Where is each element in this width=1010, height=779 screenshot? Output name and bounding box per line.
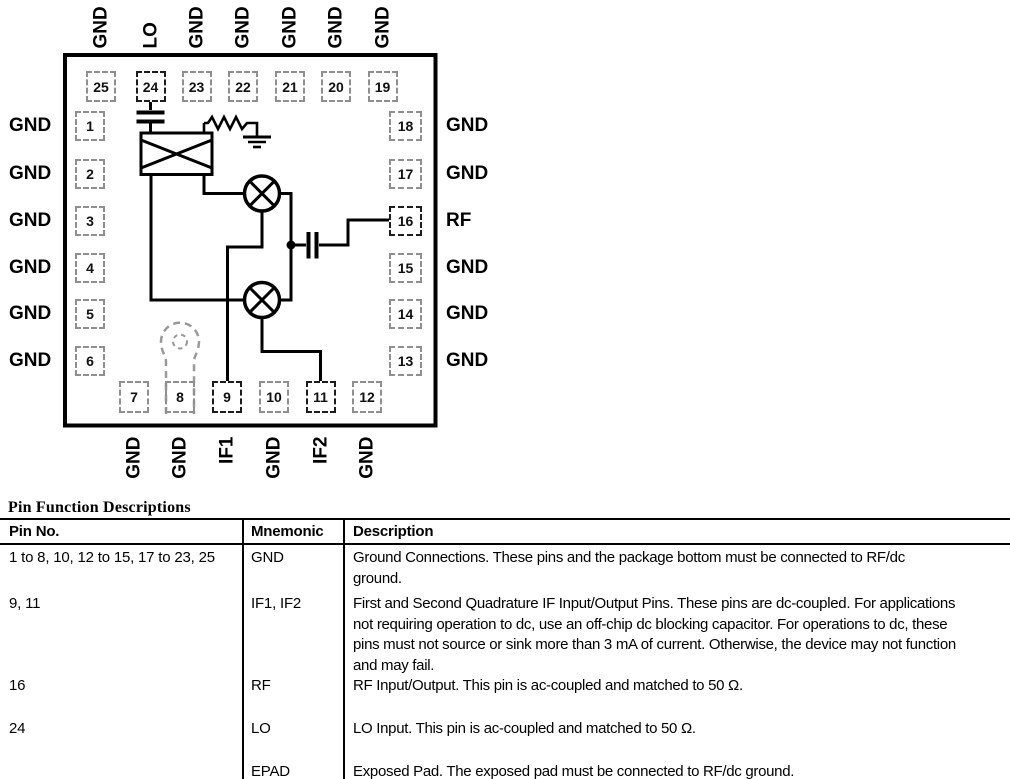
table-row: 1 to 8, 10, 12 to 15, 17 to 23, 25GNDGro…: [0, 545, 1010, 591]
ground-icon: [243, 137, 271, 147]
package-outline: [65, 55, 436, 426]
cell-mnemonic: RF: [242, 673, 343, 716]
capacitor-icon: [137, 102, 165, 133]
pin-12: 12: [352, 381, 382, 413]
pin-label-gnd: GND: [9, 257, 51, 279]
table-header-description: Description: [343, 520, 1010, 543]
pin-label-gnd: GND: [9, 303, 51, 325]
pin-label-gnd: GND: [125, 436, 144, 488]
pin-20: 20: [321, 71, 351, 102]
pin-label-lo: LO: [141, 0, 160, 48]
cell-pin-no: 24: [0, 716, 242, 759]
cell-pin-no: 1 to 8, 10, 12 to 15, 17 to 23, 25: [0, 545, 242, 591]
pin-3: 3: [75, 206, 105, 236]
pin-21: 21: [275, 71, 305, 102]
pin-label-gnd: GND: [358, 436, 377, 488]
pin-label-gnd: GND: [281, 0, 300, 48]
pin-8: 8: [165, 381, 195, 413]
table-header-pin-no: Pin No.: [0, 520, 242, 543]
pin-13: 13: [389, 346, 422, 376]
pin-label-rf: RF: [446, 210, 471, 232]
mixer-icon: [245, 283, 280, 318]
pin-label-if2: IF2: [311, 436, 330, 488]
pin-15: 15: [389, 253, 422, 283]
pin-6: 6: [75, 346, 105, 376]
table-header-row: Pin No. Mnemonic Description: [0, 518, 1010, 545]
table-row: EPADExposed Pad. The exposed pad must be…: [0, 759, 1010, 779]
pin-24: 24: [136, 71, 166, 102]
pin-label-gnd: GND: [327, 0, 346, 48]
cell-description: LO Input. This pin is ac-coupled and mat…: [343, 716, 1010, 759]
cell-pin-no: 16: [0, 673, 242, 716]
pin-19: 19: [368, 71, 398, 102]
pin-label-gnd: GND: [9, 115, 51, 137]
cell-description: Exposed Pad. The exposed pad must be con…: [343, 759, 1010, 779]
table-row: 9, 11IF1, IF2First and Second Quadrature…: [0, 591, 1010, 673]
cell-mnemonic: GND: [242, 545, 343, 591]
pin-22: 22: [228, 71, 258, 102]
junction-node: [287, 241, 296, 250]
capacitor-icon: [309, 232, 317, 259]
cell-description: First and Second Quadrature IF Input/Out…: [343, 591, 1010, 676]
pin-7: 7: [119, 381, 149, 413]
cell-pin-no: 9, 11: [0, 591, 242, 676]
transformer-icon: [141, 133, 212, 175]
pin-label-if1: IF1: [218, 436, 237, 488]
pin-label-gnd: GND: [9, 350, 51, 372]
pin-10: 10: [259, 381, 289, 413]
mixer-icon: [245, 176, 280, 211]
pin-label-gnd: GND: [187, 0, 206, 48]
pin-17: 17: [389, 159, 422, 189]
pin-14: 14: [389, 299, 422, 329]
cell-mnemonic: IF1, IF2: [242, 591, 343, 676]
pin-25: 25: [86, 71, 116, 102]
pin-label-gnd: GND: [92, 0, 111, 48]
pin-23: 23: [182, 71, 212, 102]
pin-9: 9: [212, 381, 242, 413]
cell-mnemonic: LO: [242, 716, 343, 759]
pin-label-gnd: GND: [446, 303, 488, 325]
pin-label-gnd: GND: [9, 210, 51, 232]
pin-16: 16: [389, 206, 422, 236]
pin-label-gnd: GND: [234, 0, 253, 48]
pin-diagram: 25GND24LO23GND22GND21GND20GND19GND1GND2G…: [0, 0, 505, 497]
pin-label-gnd: GND: [446, 115, 488, 137]
table-row: 16RFRF Input/Output. This pin is ac-coup…: [0, 673, 1010, 716]
pin-2: 2: [75, 159, 105, 189]
cell-mnemonic: EPAD: [242, 759, 343, 779]
pin-label-gnd: GND: [171, 436, 190, 488]
pin-1: 1: [75, 111, 105, 141]
pin-label-gnd: GND: [9, 163, 51, 185]
table-header-mnemonic: Mnemonic: [242, 520, 343, 543]
pin-label-gnd: GND: [265, 436, 284, 488]
pin-label-gnd: GND: [446, 257, 488, 279]
pin-5: 5: [75, 299, 105, 329]
pin-18: 18: [389, 111, 422, 141]
pin-label-gnd: GND: [446, 350, 488, 372]
table-body: 1 to 8, 10, 12 to 15, 17 to 23, 25GNDGro…: [0, 545, 1010, 779]
cell-pin-no: [0, 759, 242, 779]
cell-description: RF Input/Output. This pin is ac-coupled …: [343, 673, 1010, 716]
pin-label-gnd: GND: [373, 0, 392, 48]
datasheet-page: 25GND24LO23GND22GND21GND20GND19GND1GND2G…: [0, 0, 1010, 779]
table-title: Pin Function Descriptions: [8, 499, 191, 517]
pin-11: 11: [306, 381, 336, 413]
pin-4: 4: [75, 253, 105, 283]
table-row: 24LOLO Input. This pin is ac-coupled and…: [0, 716, 1010, 759]
pin-label-gnd: GND: [446, 163, 488, 185]
cell-description: Ground Connections. These pins and the p…: [343, 545, 1010, 591]
